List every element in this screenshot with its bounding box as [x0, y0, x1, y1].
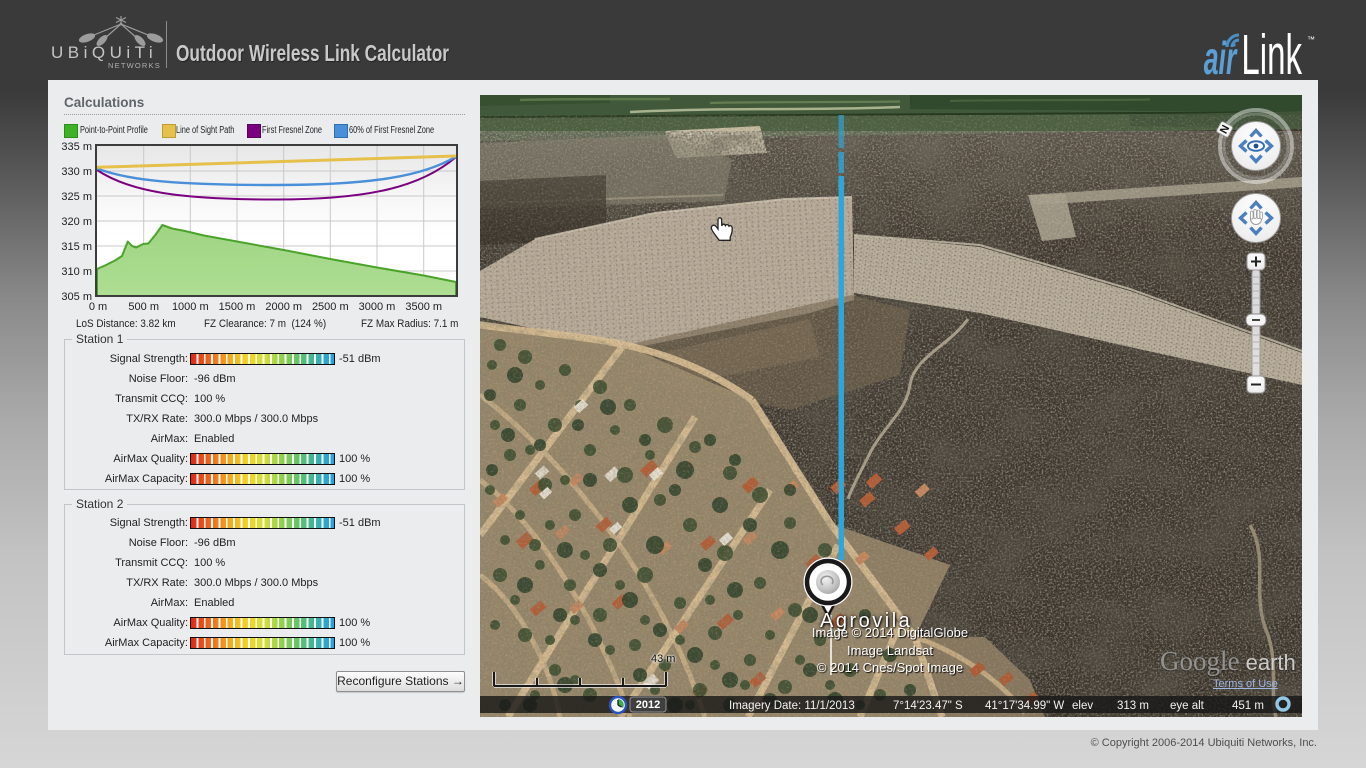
svg-text:320 m: 320 m: [61, 216, 92, 228]
svg-text:0 m: 0 m: [89, 301, 107, 313]
svg-text:™: ™: [1307, 35, 1315, 44]
svg-text:500 m: 500 m: [128, 301, 159, 313]
svg-text:air: air: [1204, 32, 1238, 78]
svg-text:1500 m: 1500 m: [219, 301, 256, 313]
svg-text:2000 m: 2000 m: [265, 301, 302, 313]
svg-text:2500 m: 2500 m: [312, 301, 349, 313]
svg-text:325 m: 325 m: [61, 191, 92, 203]
svg-text:315 m: 315 m: [61, 241, 92, 253]
svg-text:3500 m: 3500 m: [405, 301, 442, 313]
svg-text:305 m: 305 m: [61, 291, 92, 303]
svg-text:3000 m: 3000 m: [359, 301, 396, 313]
svg-text:335 m: 335 m: [61, 141, 92, 153]
svg-text:330 m: 330 m: [61, 166, 92, 178]
svg-text:Link: Link: [1241, 26, 1302, 78]
svg-text:1000 m: 1000 m: [172, 301, 209, 313]
svg-text:310 m: 310 m: [61, 266, 92, 278]
